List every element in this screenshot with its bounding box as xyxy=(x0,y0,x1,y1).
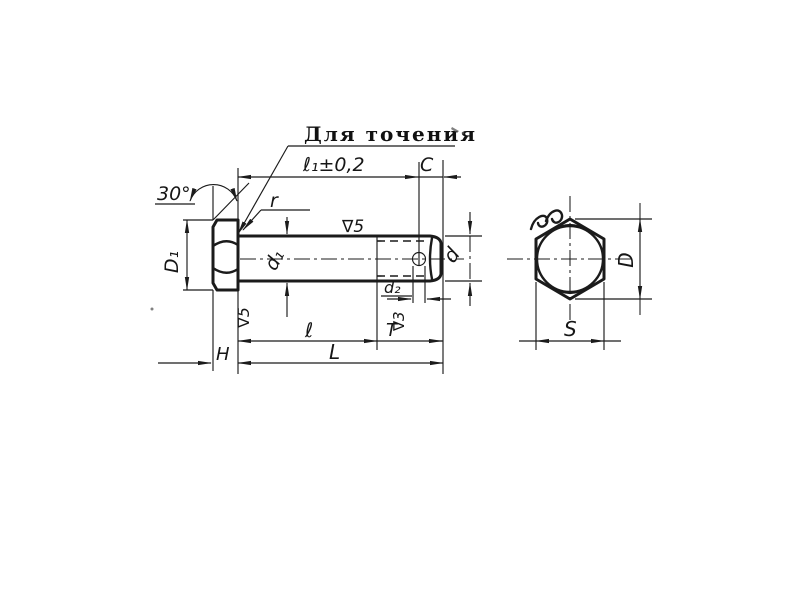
bolt-head-facet-arc-bottom xyxy=(213,268,238,273)
note-for-turning: Для точения xyxy=(304,122,477,146)
across-corners-label: D xyxy=(614,252,638,267)
technical-drawing: D₁ 30° Для точения r ℓ₁±0,2 C d₁ ∇5 xyxy=(0,0,800,600)
side-view-dimensions: D₁ 30° Для точения r ℓ₁±0,2 C d₁ ∇5 xyxy=(155,122,482,374)
bolt-head-facet-arc-top xyxy=(213,241,238,246)
speck-dot xyxy=(462,132,465,135)
bolt-head-outline xyxy=(213,220,238,290)
angle-leg-line xyxy=(213,183,249,220)
shank-finish-mark: ∇5 xyxy=(341,217,364,237)
shank-diameter-label: d₁ xyxy=(260,246,289,274)
speck-dot xyxy=(151,308,154,311)
fillet-radius-label: r xyxy=(270,190,279,212)
shank-length-label: L xyxy=(329,340,340,364)
note-leader xyxy=(238,146,288,234)
grip-length-label: ℓ xyxy=(304,318,313,342)
bolt-side-view xyxy=(213,220,464,290)
hole-diameter-label: d₂ xyxy=(384,278,401,297)
across-flats-label: S xyxy=(564,317,577,341)
drawing-sheet: D₁ 30° Для точения r ℓ₁±0,2 C d₁ ∇5 xyxy=(0,0,800,600)
turned-length-label: ℓ₁±0,2 xyxy=(302,154,365,176)
chamfer-label: C xyxy=(420,154,434,176)
head-diameter-label: D₁ xyxy=(161,251,183,273)
head-height-label: H xyxy=(216,344,230,365)
angle-dim-label: 30° xyxy=(157,183,191,205)
thread-finish-mark: ∇3 xyxy=(390,311,408,332)
bolt-end-view: D S xyxy=(507,196,652,350)
bearing-finish-mark: ∇5 xyxy=(234,307,253,329)
